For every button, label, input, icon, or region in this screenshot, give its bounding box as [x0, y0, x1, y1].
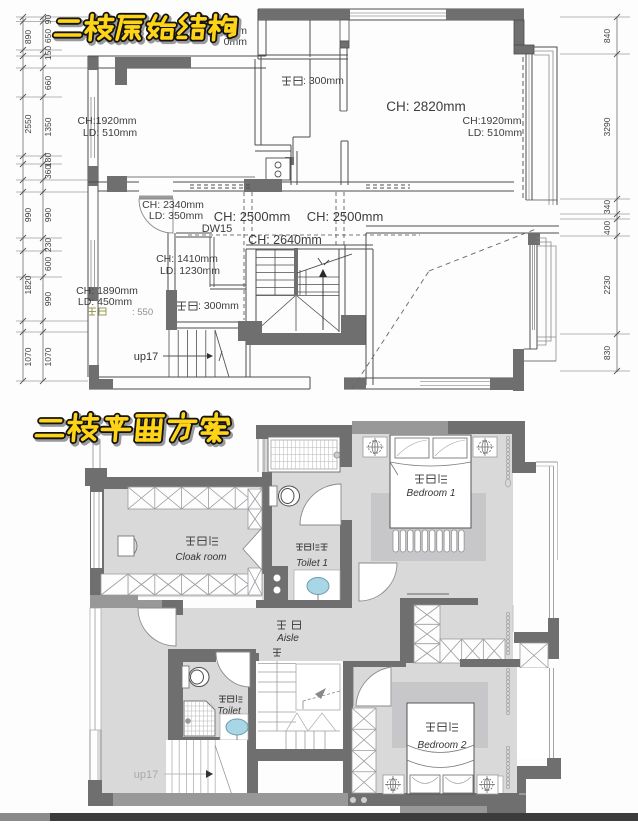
svg-text:: 300mm: : 300mm: [303, 75, 344, 87]
svg-text:990: 990: [43, 208, 53, 222]
svg-text:Toilet 1: Toilet 1: [296, 558, 328, 569]
svg-text:LD: 510mm: LD: 510mm: [468, 127, 523, 139]
svg-text:150: 150: [43, 46, 53, 60]
svg-text:: 550: : 550: [132, 307, 153, 318]
svg-text:340: 340: [602, 200, 612, 214]
svg-text:CH: 2820mm: CH: 2820mm: [386, 99, 466, 114]
svg-text:DW15: DW15: [202, 223, 233, 235]
svg-text:LD: 450mm: LD: 450mm: [78, 296, 133, 308]
svg-text:LD: 1230mm: LD: 1230mm: [160, 265, 220, 277]
svg-text:CH: 1410mm: CH: 1410mm: [156, 253, 218, 265]
svg-text:990: 990: [23, 208, 33, 222]
svg-text:Bedroom 2: Bedroom 2: [418, 740, 467, 751]
svg-text:650: 650: [43, 29, 53, 43]
svg-text:3290: 3290: [602, 117, 612, 136]
svg-text:LD: 350mm: LD: 350mm: [149, 210, 204, 222]
svg-text:CH: 2500mm: CH: 2500mm: [214, 209, 291, 224]
svg-text:660: 660: [43, 76, 53, 90]
svg-text:400: 400: [602, 221, 612, 235]
svg-text:Aisle: Aisle: [276, 633, 299, 644]
svg-text:LD: 510mm: LD: 510mm: [83, 127, 138, 139]
svg-text:230: 230: [43, 238, 53, 252]
svg-text:CH:1920mm: CH:1920mm: [78, 115, 137, 127]
svg-text:up17: up17: [134, 769, 158, 781]
svg-text:1350: 1350: [43, 117, 53, 136]
svg-text:CH: 2640mm: CH: 2640mm: [248, 233, 322, 247]
svg-text:CH:1920mm: CH:1920mm: [463, 115, 522, 127]
svg-text:: 300mm: : 300mm: [198, 300, 239, 312]
svg-text:90: 90: [43, 15, 53, 25]
svg-text:CH: 2500mm: CH: 2500mm: [307, 209, 384, 224]
svg-text:840: 840: [602, 29, 612, 43]
svg-text:600: 600: [43, 257, 53, 271]
svg-text:Cloak room: Cloak room: [175, 552, 226, 563]
svg-text:360: 360: [43, 165, 53, 179]
svg-text:2230: 2230: [602, 275, 612, 294]
svg-text:Bedroom 1: Bedroom 1: [407, 488, 456, 499]
svg-text:990: 990: [43, 292, 53, 306]
svg-text:1070: 1070: [43, 347, 53, 366]
svg-text:up17: up17: [134, 351, 158, 363]
svg-text:890: 890: [23, 30, 33, 44]
svg-text:1820: 1820: [23, 275, 33, 294]
svg-text:2550: 2550: [23, 114, 33, 133]
svg-text:830: 830: [602, 346, 612, 360]
svg-text:1070: 1070: [23, 347, 33, 366]
